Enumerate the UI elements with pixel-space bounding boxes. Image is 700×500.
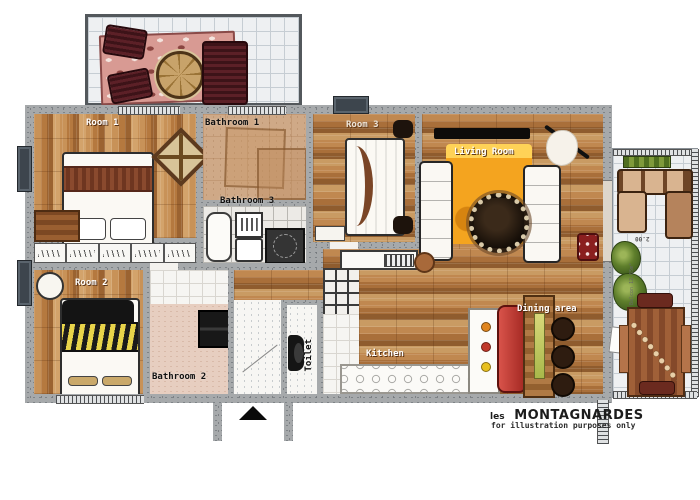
- outdoor-sofa-seat: [665, 191, 693, 239]
- toilet-label: Toilet: [304, 339, 314, 372]
- terrace-round-table: [156, 51, 204, 99]
- bathroom3-bathtub: [206, 212, 232, 262]
- bathroom3-washer: [235, 212, 263, 238]
- room1-corner-table: [151, 127, 210, 186]
- fur-rug: [546, 130, 578, 166]
- living-sofa-left: [419, 161, 453, 261]
- apartment-walls: Toilet: [25, 105, 612, 403]
- entry-vestibule: [213, 403, 293, 443]
- room2-floor: [34, 270, 143, 394]
- entry-hall-floor: [234, 300, 281, 394]
- closet-door: [131, 243, 163, 263]
- bathroom3-label: Bathroom 3: [220, 196, 274, 206]
- room3-blanket: [345, 146, 373, 226]
- room1-label: Room 1: [86, 118, 119, 128]
- right-balcony: 2.00 Balcon 12.65m²: [612, 148, 698, 398]
- room3-floor: [313, 114, 415, 242]
- room2-headboard: [62, 300, 134, 322]
- knob: [481, 322, 491, 332]
- knob: [481, 342, 491, 352]
- room3-nightstand: [393, 120, 413, 138]
- room1-floor: [34, 114, 196, 238]
- shower-head-icon: [273, 234, 297, 258]
- living-sofa-right: [523, 165, 561, 263]
- dining-chair: [551, 345, 575, 369]
- bathroom1-label: Bathroom 1: [205, 118, 259, 128]
- door-swing-line: [242, 345, 277, 373]
- kitchen-island: [468, 308, 500, 394]
- room1-blanket: [62, 166, 154, 192]
- room2-side-table: [36, 272, 64, 300]
- entrance-arrow-icon: [239, 406, 267, 420]
- terrace-door: [603, 180, 612, 262]
- window: [333, 96, 369, 114]
- room3-closet: [315, 226, 345, 241]
- planter-box: [623, 156, 671, 168]
- terrace-bench: [202, 41, 248, 105]
- bathroom2-label: Bathroom 2: [152, 372, 206, 382]
- dining-area-label: Dining area: [517, 304, 577, 314]
- kitchen-tile-patch: [323, 268, 359, 314]
- knob: [481, 362, 491, 372]
- window-hatched: [118, 106, 180, 115]
- living-console: [434, 128, 530, 139]
- living-round-table: [469, 193, 529, 253]
- footer-disclaimer: for illustration purposes only: [491, 421, 636, 430]
- dining-chair: [551, 317, 575, 341]
- kitchen-counter-bottom: [340, 364, 470, 394]
- door-gap: [330, 242, 358, 249]
- room1-dresser: [34, 210, 80, 242]
- kitchen-stool: [414, 252, 435, 273]
- balcony-area-label: Balcon 12.65m²: [629, 253, 635, 305]
- plant: [611, 241, 641, 275]
- kitchen-label: Kitchen: [366, 349, 404, 359]
- room3-label: Room 3: [346, 120, 379, 130]
- bathroom2-entry-tiles: [150, 270, 228, 304]
- balcony-dimension: 2.00: [635, 235, 649, 242]
- outdoor-sofa-chaise: [617, 191, 647, 233]
- door-gap: [150, 263, 178, 270]
- room2-bed: [60, 298, 140, 394]
- toilet-seat: [294, 343, 303, 363]
- closet-door: [34, 243, 66, 263]
- closet-door: [164, 243, 196, 263]
- room2-label: Room 2: [75, 278, 108, 288]
- room1-pillow: [110, 218, 146, 240]
- bathroom3-shower: [265, 228, 305, 263]
- table-wing: [681, 325, 691, 373]
- balcony-rail-top: [613, 149, 697, 156]
- outdoor-bench: [639, 381, 675, 395]
- table-wing: [619, 325, 629, 373]
- terrace-chair: [102, 24, 148, 60]
- living-room-label: Living Room: [454, 147, 514, 157]
- room3-nightstand: [393, 216, 413, 234]
- vestibule-wall: [284, 403, 293, 441]
- room2-pillow: [102, 376, 132, 386]
- kitchen-counter-top: [340, 250, 418, 270]
- table-chain-decor: [628, 319, 680, 382]
- window: [17, 260, 32, 306]
- toilet-floor: Toilet: [287, 305, 317, 394]
- top-terrace: [85, 14, 302, 106]
- closet-row: [34, 243, 196, 263]
- bathroom3-floor: [203, 206, 306, 263]
- toilet-fixture: [288, 335, 304, 371]
- living-side-table: [577, 233, 599, 261]
- floorplan-canvas: Toilet 2.00 Balcon 12.65m²: [0, 0, 700, 500]
- corridor-floor: [234, 270, 323, 300]
- outdoor-bench: [637, 293, 673, 308]
- closet-door: [99, 243, 131, 263]
- vestibule-wall: [213, 403, 222, 441]
- room2-blanket: [60, 322, 140, 352]
- room2-pillow: [68, 376, 98, 386]
- bathroom1-mat: [257, 148, 306, 200]
- window: [17, 146, 32, 192]
- window-hatched: [56, 395, 144, 404]
- kitchen-sink-icon: [384, 254, 414, 267]
- bathroom2-vanity: [198, 310, 228, 348]
- bathroom3-sink: [235, 238, 263, 262]
- dining-table-runner: [534, 313, 545, 379]
- closet-door: [66, 243, 98, 263]
- window-hatched: [228, 106, 286, 115]
- dining-chair: [551, 373, 575, 397]
